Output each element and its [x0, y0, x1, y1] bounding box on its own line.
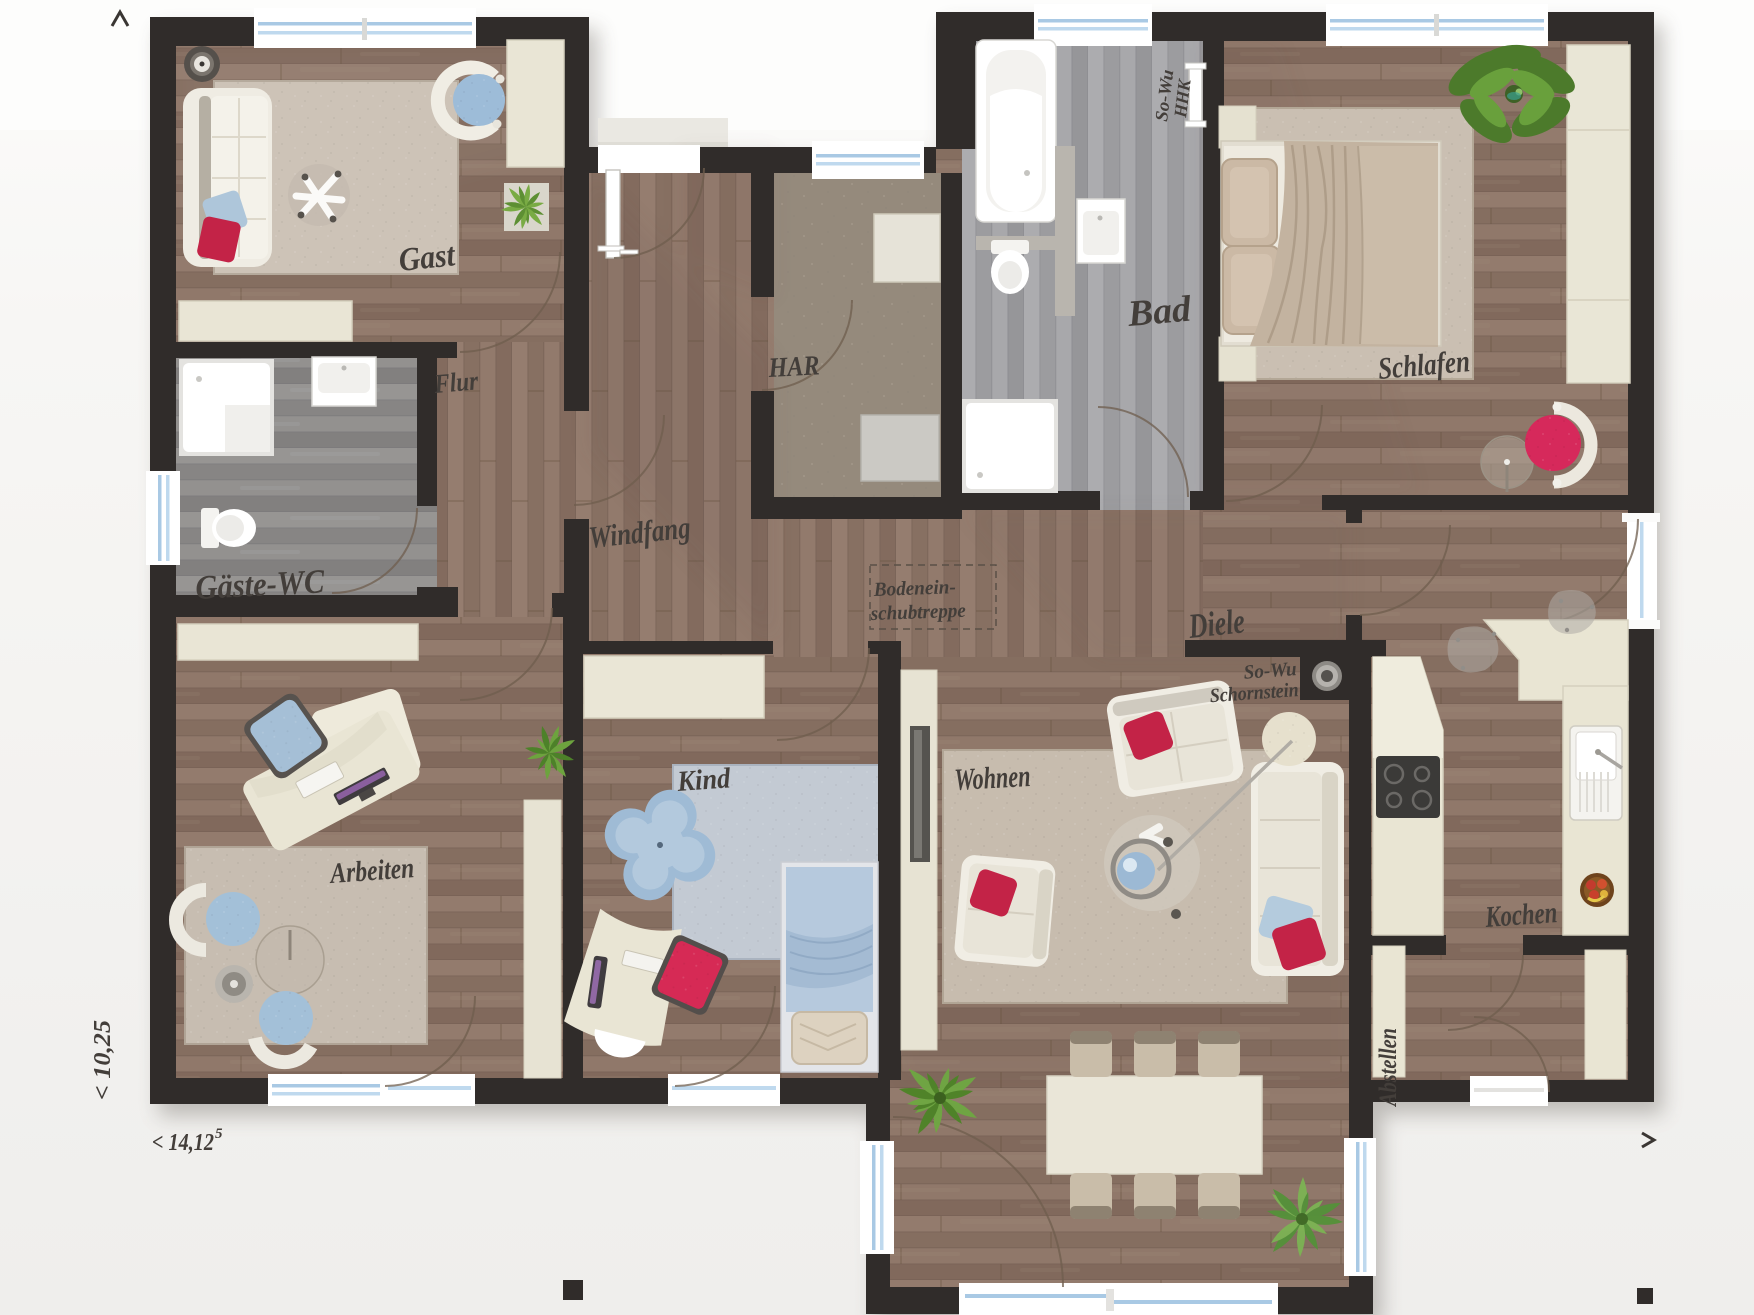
svg-text:Flur: Flur: [432, 365, 480, 399]
svg-text:Abstellen: Abstellen: [1375, 1028, 1402, 1108]
svg-text:5: 5: [215, 1126, 223, 1142]
svg-text:HAR: HAR: [767, 350, 820, 384]
svg-text:Kochen: Kochen: [1483, 896, 1558, 934]
svg-text:Bad: Bad: [1125, 289, 1193, 335]
svg-text:< 10,25: < 10,25: [90, 1020, 116, 1100]
svg-text:Wohnen: Wohnen: [954, 758, 1032, 797]
svg-text:< 14,12: < 14,12: [152, 1130, 214, 1156]
svg-text:Diele: Diele: [1186, 601, 1247, 646]
svg-text:Kind: Kind: [675, 762, 731, 798]
svg-text:Arbeiten: Arbeiten: [328, 852, 416, 890]
svg-text:Gast: Gast: [397, 237, 457, 279]
svg-text:Gäste-WC: Gäste-WC: [194, 563, 325, 607]
svg-text:Bodenein-: Bodenein-: [872, 576, 956, 601]
svg-text:schubtreppe: schubtreppe: [869, 600, 966, 625]
